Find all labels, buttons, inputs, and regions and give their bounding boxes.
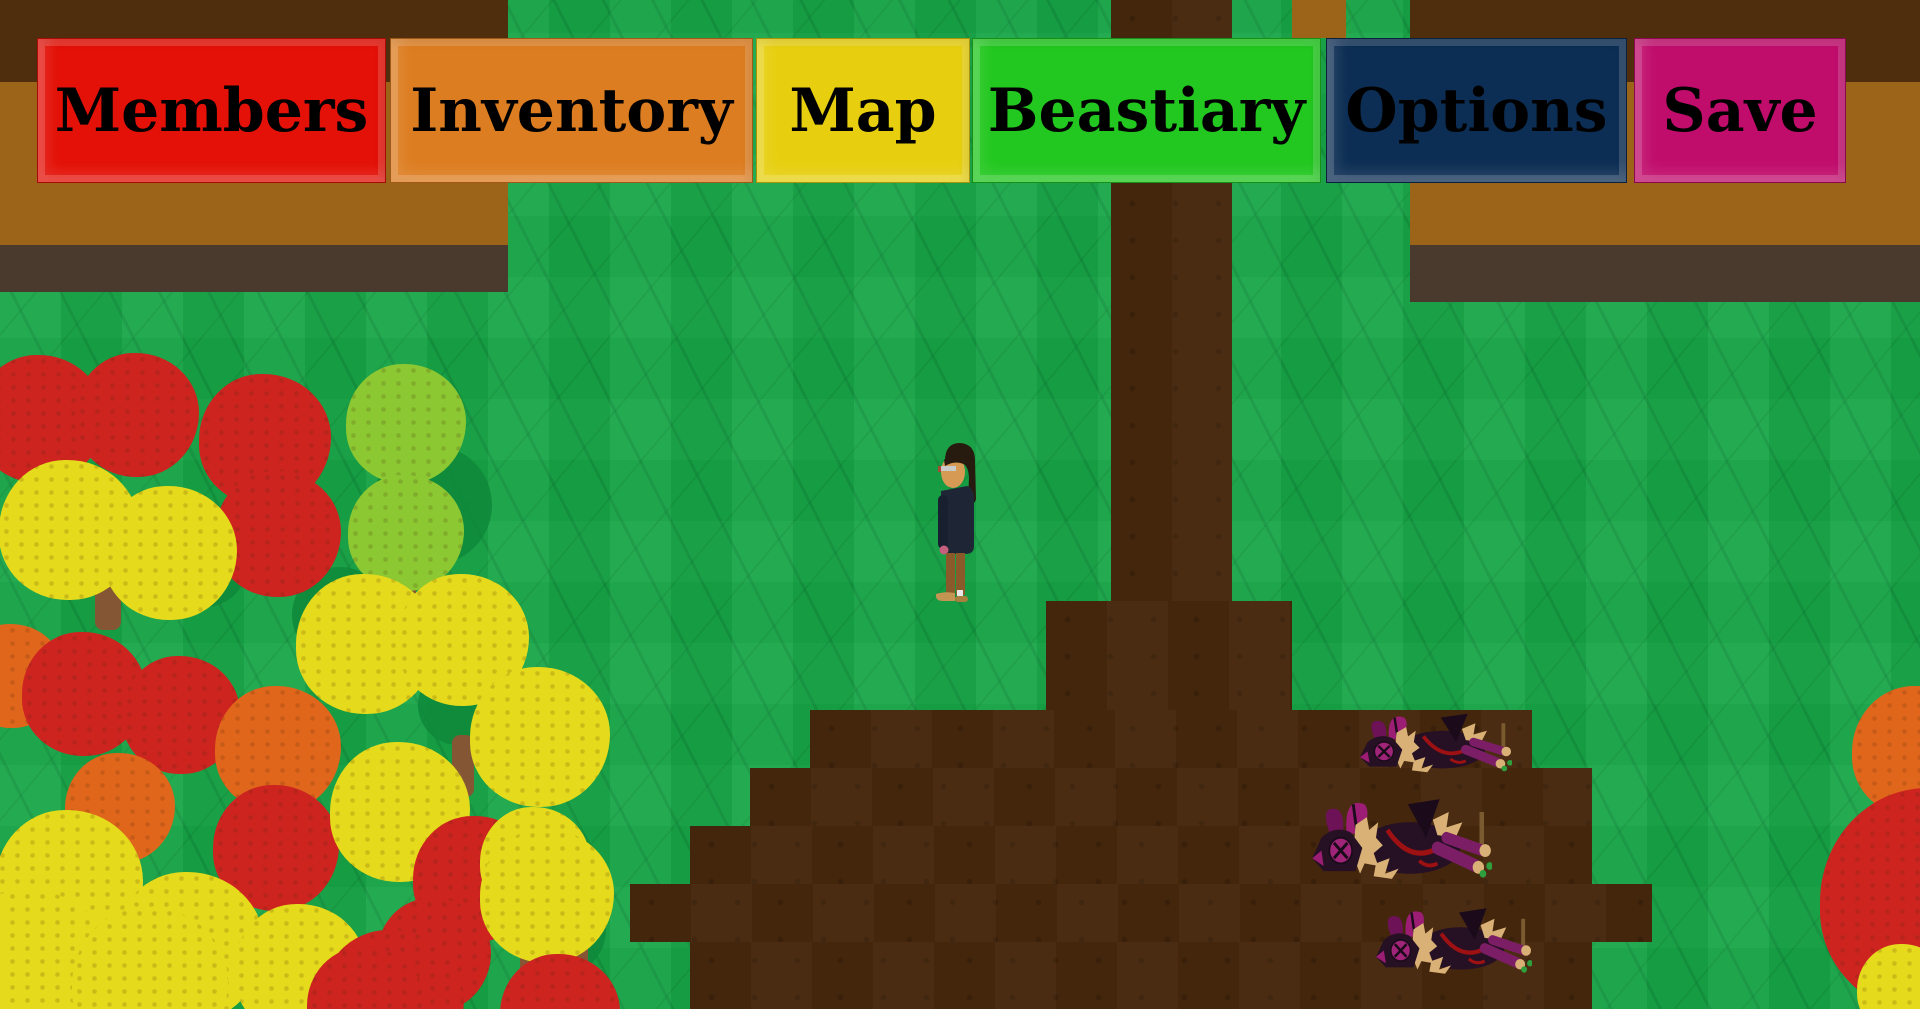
menu-button-beastiary[interactable]: Beastiary <box>972 38 1321 183</box>
menu-button-map[interactable]: Map <box>756 38 970 183</box>
beast-paw-2 <box>1521 945 1531 956</box>
beast-paw-2 <box>1479 844 1490 857</box>
player-glasses-frame <box>938 466 941 472</box>
grass-sprig-2 <box>1507 760 1512 766</box>
player-arm <box>938 495 948 549</box>
menu-button-save-label: Save <box>1662 76 1817 146</box>
player-leg-front <box>946 553 955 595</box>
defeated-beast-sprite <box>1310 794 1492 884</box>
menu-button-members[interactable]: Members <box>37 38 386 183</box>
menu-button-members-label: Members <box>55 76 369 146</box>
player-sock <box>957 590 963 596</box>
tree-foliage <box>480 829 614 963</box>
player-character <box>933 441 981 603</box>
player-shoe-front <box>936 592 955 601</box>
tree-foliage <box>103 486 237 620</box>
defeated-beast-sprite <box>1358 710 1512 776</box>
menu-button-beastiary-label: Beastiary <box>988 76 1305 146</box>
grass-sprig-2 <box>1527 960 1532 966</box>
menu-button-options[interactable]: Options <box>1326 38 1627 183</box>
menu-button-inventory-label: Inventory <box>410 76 733 146</box>
player-glasses <box>939 466 956 471</box>
beast-paw-2 <box>1501 747 1511 756</box>
grass-sprig-2 <box>1486 862 1492 870</box>
tree-foliage <box>346 364 466 484</box>
tree-foliage <box>75 353 199 477</box>
dirt-clearing-row <box>1046 601 1292 713</box>
menu-button-inventory[interactable]: Inventory <box>390 38 753 183</box>
defeated-beast-sprite <box>1374 904 1532 978</box>
player-shoe-back <box>955 596 968 602</box>
player-leg-back <box>956 553 965 595</box>
menu-button-map-label: Map <box>789 76 936 146</box>
road-gap-tile <box>1292 0 1346 38</box>
menu-button-options-label: Options <box>1345 76 1607 146</box>
grass-sprig-1 <box>1501 766 1507 772</box>
menu-button-save[interactable]: Save <box>1634 38 1846 183</box>
game-screen: Members Inventory Map Beastiary Options … <box>0 0 1920 1009</box>
tree-foliage <box>500 954 620 1009</box>
road-shadow-right <box>1410 245 1920 302</box>
grass-sprig-1 <box>1479 870 1486 878</box>
road-shadow-left <box>0 245 508 292</box>
tree-foliage <box>470 667 610 807</box>
grass-sprig-1 <box>1521 966 1527 972</box>
